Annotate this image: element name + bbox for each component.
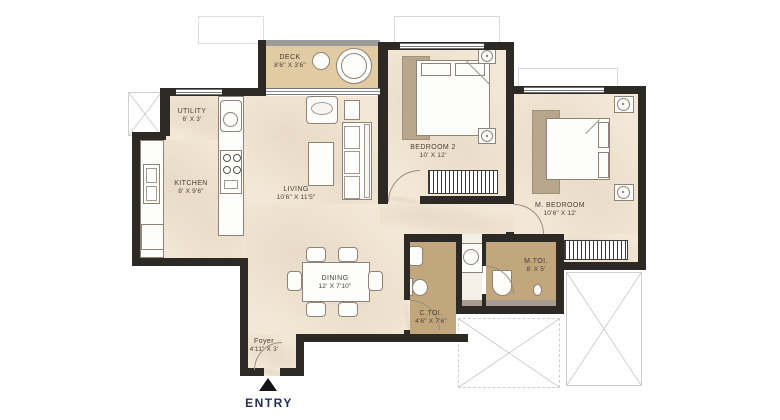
dining-chair [368, 271, 383, 291]
bed-pillow [421, 63, 451, 76]
dining-chair [338, 302, 358, 317]
dining-chair [306, 247, 326, 262]
wall-segment [456, 306, 564, 314]
window [400, 43, 484, 49]
lamp-dot [486, 55, 488, 57]
washing-machine [141, 224, 164, 250]
sink-bowl [146, 168, 157, 183]
ledge-box [394, 16, 500, 44]
lamp-dot [622, 191, 624, 193]
wall-segment [482, 294, 486, 306]
window [176, 89, 222, 95]
dining-chair [287, 271, 302, 291]
wall-segment [160, 92, 170, 136]
bed-pillow [598, 152, 609, 178]
wall-segment [638, 86, 646, 270]
side-stool [344, 100, 360, 120]
wall-segment [378, 42, 388, 204]
wall-segment [266, 40, 380, 46]
wall-segment [482, 234, 564, 242]
wash-basin [533, 284, 542, 296]
wash-basin [408, 246, 423, 266]
dining-chair [306, 302, 326, 317]
wall-segment [556, 262, 646, 270]
ledge-box [518, 68, 618, 88]
room-label-utility: UTILITY 6' X 3' [178, 107, 207, 125]
wall-segment [132, 258, 248, 266]
wall-segment [456, 242, 462, 306]
wall-segment [132, 132, 140, 266]
wall-segment [420, 196, 514, 204]
wall-segment [240, 258, 248, 376]
room-label-dining: DINING 12' X 7'10" [318, 274, 351, 292]
sofa-cushion [344, 126, 360, 149]
room-label-common-toilet: C.TOI. 4'6" X 7'6" [415, 309, 447, 327]
wall-segment [506, 42, 514, 204]
stove-burner [233, 154, 241, 162]
floor-corridor [380, 204, 514, 234]
coffee-table [308, 142, 334, 186]
wall-segment [556, 234, 564, 314]
utility-sink-bowl [223, 112, 238, 127]
wash-basin [463, 249, 479, 265]
stove-burner [223, 166, 231, 174]
toilet-wc [412, 279, 428, 296]
wall-segment [296, 342, 304, 376]
armchair-cushion [311, 102, 333, 115]
wall-segment [482, 242, 486, 266]
lamp-dot [622, 103, 624, 105]
room-label-kitchen: KITCHEN 8' X 9'6" [174, 179, 208, 197]
deck-planter [312, 52, 330, 70]
sofa-cushion [344, 176, 360, 199]
lamp-dot [486, 135, 488, 137]
wall-segment [296, 334, 468, 342]
floor-plan: DECK 8'6" X 3'6" UTILITY 6' X 3' KITCHEN… [0, 0, 780, 420]
sofa-backrest [364, 124, 370, 198]
wall-segment [404, 234, 410, 300]
dining-chair [338, 247, 358, 262]
room-label-bedroom2: BEDROOM 2 10' X 12' [410, 143, 456, 161]
stove-burner [233, 166, 241, 174]
room-label-foyer: Foyer 4'11" X 3' [250, 337, 279, 355]
room-label-deck: DECK 8'6" X 3'6" [274, 53, 306, 71]
deck-round-table-inner [341, 53, 367, 79]
entry-label: ENTRY [245, 396, 293, 410]
stove-burner [223, 154, 231, 162]
stove-drawer [224, 180, 238, 189]
window [524, 87, 604, 93]
entry-arrow-icon [259, 378, 277, 391]
sliding-door [266, 88, 380, 95]
room-label-master-bedroom: M. BEDROOM 10'6" X 12' [535, 201, 585, 219]
wall-segment [404, 234, 462, 242]
room-label-master-toilet: M.TOI. 8' X 5' [524, 257, 548, 275]
bed-pillow [598, 122, 609, 148]
wall-segment [506, 232, 514, 242]
ledge-box [198, 16, 264, 44]
terrace-open-area [458, 318, 560, 388]
terrace-open-area [566, 272, 642, 386]
sink-bowl [146, 186, 157, 201]
wardrobe [564, 240, 628, 260]
sofa-cushion [344, 151, 360, 174]
floor-nook-opening [462, 234, 482, 242]
wardrobe [428, 170, 498, 194]
utility-ledge-hatch [128, 92, 162, 136]
room-label-living: LIVING 10'6" X 11'5" [277, 185, 316, 203]
